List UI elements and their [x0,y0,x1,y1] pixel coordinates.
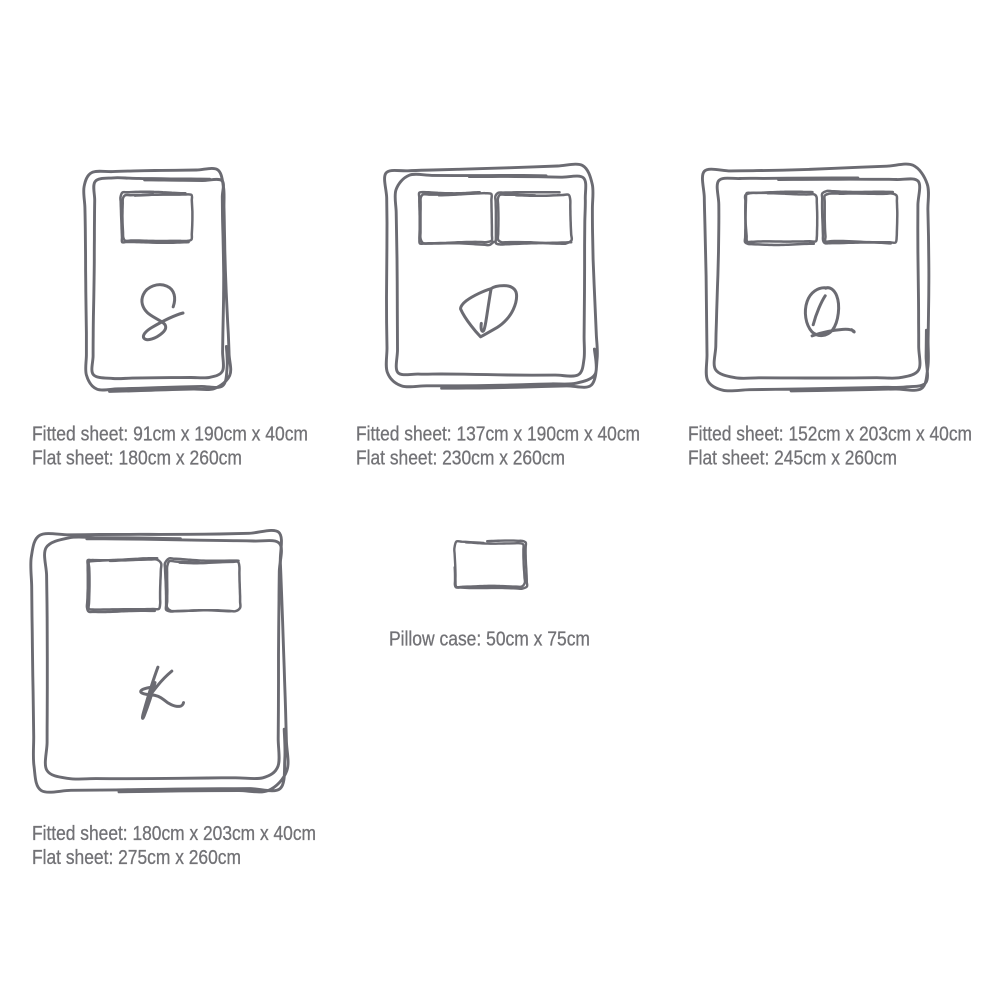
svg-text:Flat sheet: 245cm x 260cm: Flat sheet: 245cm x 260cm [688,447,897,470]
svg-text:Flat sheet: 230cm x 260cm: Flat sheet: 230cm x 260cm [356,447,565,470]
svg-text:Flat sheet: 275cm x 260cm: Flat sheet: 275cm x 260cm [32,846,241,869]
svg-text:Fitted sheet: 91cm x 190cm x 4: Fitted sheet: 91cm x 190cm x 40cm [32,422,308,445]
svg-text:Fitted sheet: 152cm x 203cm x: Fitted sheet: 152cm x 203cm x 40cm [688,422,972,445]
svg-text:Fitted sheet: 137cm x 190cm x: Fitted sheet: 137cm x 190cm x 40cm [356,422,640,445]
svg-text:Pillow case: 50cm x 75cm: Pillow case: 50cm x 75cm [389,628,590,651]
svg-text:Fitted sheet: 180cm x 203cm x: Fitted sheet: 180cm x 203cm x 40cm [32,822,316,845]
svg-text:Flat sheet: 180cm x 260cm: Flat sheet: 180cm x 260cm [32,447,242,470]
